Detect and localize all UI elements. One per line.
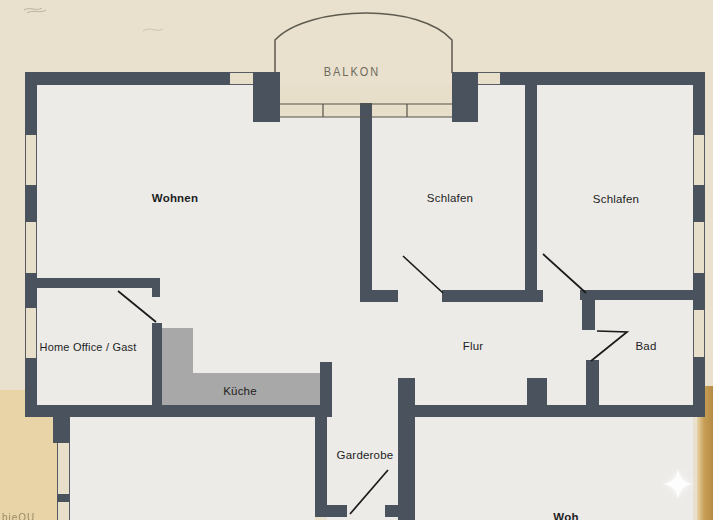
room-label-garderobe: Garderobe — [337, 449, 394, 461]
room-label-bad: Bad — [635, 340, 656, 352]
plan-lines — [0, 0, 713, 520]
room-label-schlafen-2: Schlafen — [593, 193, 639, 205]
room-label-woh-clipped: Woh — [553, 511, 578, 520]
sparkle-icon — [662, 468, 694, 502]
room-label-kueche: Küche — [223, 385, 257, 397]
balcony-outline — [275, 13, 452, 73]
door-swing-bad — [591, 331, 627, 361]
floor-plan: BALKON Wohnen Schlafen Schlafen Home Off… — [0, 0, 713, 520]
door-swing-schlafen-1 — [403, 256, 443, 293]
pencil-scribble — [24, 8, 163, 31]
room-label-wohnen: Wohnen — [152, 192, 198, 204]
door-swing-schlafen-2 — [543, 254, 586, 293]
room-label-schlafen-1: Schlafen — [427, 192, 473, 204]
door-swing-garderobe — [350, 470, 388, 514]
door-swing-homeoffice — [118, 291, 156, 322]
room-label-homeoffice: Home Office / Gast — [40, 341, 137, 353]
balcony-door-frame — [280, 104, 452, 117]
room-label-flur: Flur — [463, 340, 484, 352]
